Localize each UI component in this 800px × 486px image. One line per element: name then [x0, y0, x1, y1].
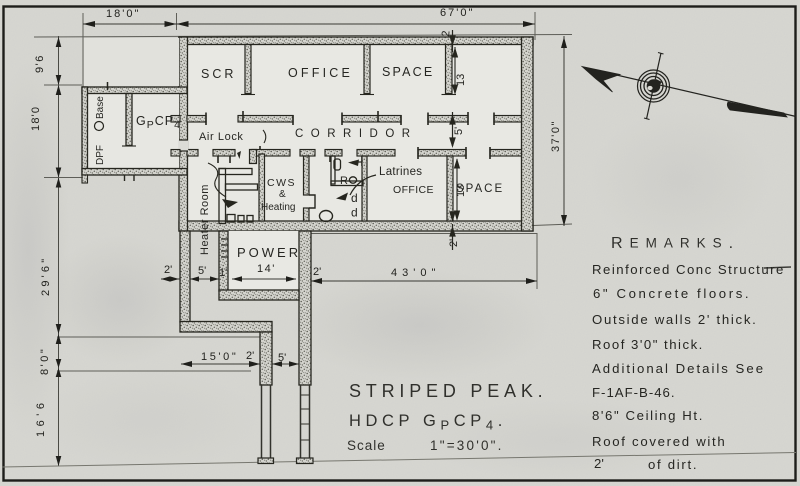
svg-text:2': 2': [164, 264, 172, 276]
svg-text:5': 5': [278, 352, 286, 364]
svg-text:18'0: 18'0: [30, 106, 42, 131]
svg-text:OFFICE: OFFICE: [288, 66, 353, 80]
svg-text:SCR: SCR: [201, 67, 236, 81]
svg-text:d: d: [351, 206, 358, 220]
svg-text:d: d: [351, 191, 358, 205]
svg-text:Outside walls 2' thick.: Outside walls 2' thick.: [592, 312, 757, 327]
svg-text:POWER: POWER: [237, 245, 301, 260]
svg-text:5': 5': [198, 265, 206, 277]
svg-text:REMARKS.: REMARKS.: [611, 235, 733, 252]
svg-text:R: R: [340, 175, 348, 187]
svg-text:HDCP GPCP4.: HDCP GPCP4.: [349, 412, 507, 433]
svg-text:&: &: [279, 189, 286, 200]
svg-text:Latrines: Latrines: [379, 166, 422, 178]
svg-text:2: 2: [440, 30, 452, 37]
svg-text:Roof 3'0" thick.: Roof 3'0" thick.: [592, 337, 704, 352]
svg-text:15'0": 15'0": [201, 351, 238, 363]
svg-text:CORRIDOR: CORRIDOR: [295, 128, 418, 140]
svg-text:6" Concrete floors.: 6" Concrete floors.: [593, 286, 751, 301]
svg-text:13: 13: [455, 185, 467, 197]
svg-text:F-1AF-B-46.: F-1AF-B-46.: [592, 385, 676, 400]
svg-text:DPF: DPF: [95, 145, 106, 165]
svg-text:2': 2': [448, 239, 460, 247]
svg-text:8'6" Ceiling Ht.: 8'6" Ceiling Ht.: [592, 408, 704, 423]
svg-text:STRIPED PEAK.: STRIPED PEAK.: [349, 381, 547, 401]
svg-text:Roof covered with: Roof covered with: [592, 434, 726, 449]
svg-text:Air Lock: Air Lock: [199, 131, 244, 143]
svg-text:CWS: CWS: [267, 177, 296, 189]
svg-text:14': 14': [257, 263, 276, 275]
svg-text:Base: Base: [95, 96, 106, 119]
svg-text:37'0": 37'0": [550, 120, 562, 152]
svg-text:8'0": 8'0": [39, 347, 51, 375]
svg-text:1': 1': [219, 267, 227, 279]
svg-text:Reinforced Conc Structure: Reinforced Conc Structure: [592, 262, 785, 277]
svg-text:43'0": 43'0": [391, 267, 440, 279]
svg-text:5': 5': [453, 127, 465, 135]
svg-text:OFFICE: OFFICE: [393, 184, 434, 196]
svg-text:13: 13: [455, 74, 467, 86]
svg-text:9'6: 9'6: [34, 54, 46, 73]
svg-text:16'6: 16'6: [35, 399, 47, 437]
svg-text:of dirt.: of dirt.: [648, 457, 698, 472]
svg-text:2': 2': [246, 350, 254, 362]
svg-text:67'0": 67'0": [440, 7, 474, 19]
svg-text:Scale: Scale: [347, 438, 386, 453]
svg-text:Additional Details See: Additional Details See: [592, 361, 765, 376]
svg-text:1"=30'0".: 1"=30'0".: [430, 438, 504, 453]
svg-text:2': 2': [313, 266, 321, 278]
svg-text:2': 2': [594, 456, 604, 471]
svg-text:18'0": 18'0": [106, 8, 140, 20]
svg-text:29'6": 29'6": [40, 256, 52, 296]
svg-text:Heater Room: Heater Room: [199, 184, 211, 255]
svg-text:SPACE: SPACE: [382, 65, 434, 79]
svg-text:Heating: Heating: [261, 202, 295, 213]
